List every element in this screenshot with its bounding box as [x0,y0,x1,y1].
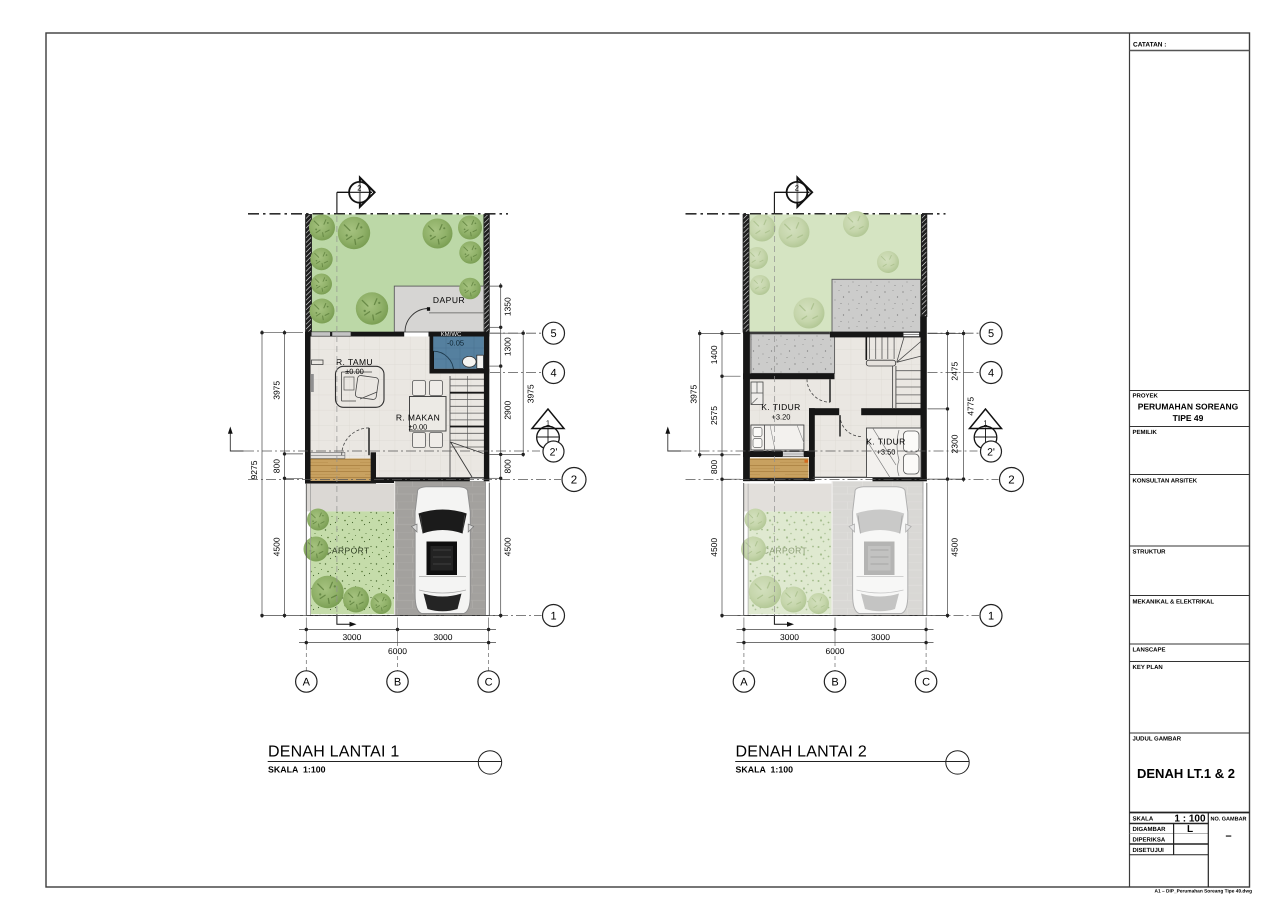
svg-text:4775: 4775 [966,397,976,416]
svg-text:2: 2 [357,183,361,192]
svg-text:DISETUJUI: DISETUJUI [1133,847,1165,854]
svg-text:4500: 4500 [272,537,282,556]
svg-text:2: 2 [571,475,577,487]
svg-text:9275: 9275 [249,460,259,479]
svg-text:4: 4 [988,367,994,379]
svg-text:JUDUL GAMBAR: JUDUL GAMBAR [1133,736,1182,743]
svg-text:2300: 2300 [950,434,960,453]
svg-text:A1 – DIP_Perumahan Soreang Tip: A1 – DIP_Perumahan Soreang Tipe 49.dwg [1155,889,1253,895]
svg-text:TIPE 49: TIPE 49 [1173,413,1204,423]
svg-text:4500: 4500 [709,538,719,557]
svg-text:SKALA: SKALA [268,765,299,775]
svg-text:DIPERIKSA: DIPERIKSA [1133,837,1166,844]
svg-text:DENAH LANTAI 1: DENAH LANTAI 1 [268,744,399,761]
svg-text:1 : 100: 1 : 100 [1174,814,1206,825]
svg-text:B: B [831,676,838,688]
svg-text:C: C [922,676,930,688]
svg-text:1400: 1400 [709,345,719,364]
svg-text:2: 2 [795,183,799,192]
svg-text:SKALA: SKALA [1133,816,1154,823]
svg-text:4500: 4500 [503,537,513,556]
svg-text:2': 2' [550,446,558,458]
svg-text:CARPORT: CARPORT [763,546,807,556]
svg-text:1350: 1350 [503,297,513,316]
svg-text:B: B [394,676,401,688]
svg-text:K. TIDUR: K. TIDUR [761,402,800,412]
svg-text:DENAH LT.1 & 2: DENAH LT.1 & 2 [1137,766,1235,781]
svg-text:800: 800 [503,459,513,473]
svg-text:3975: 3975 [272,381,282,400]
svg-text:3000: 3000 [434,632,453,642]
svg-text:800: 800 [709,460,719,474]
svg-text:2475: 2475 [950,361,960,380]
svg-text:6000: 6000 [826,646,845,656]
svg-text:MEKANIKAL & ELEKTRIKAL: MEKANIKAL & ELEKTRIKAL [1133,599,1215,606]
svg-text:1: 1 [988,610,994,622]
svg-text:DIGAMBAR: DIGAMBAR [1133,826,1167,833]
svg-text:KEY PLAN: KEY PLAN [1133,664,1163,671]
svg-text:C: C [485,676,493,688]
svg-text:2': 2' [987,446,995,458]
svg-text:800: 800 [272,459,282,473]
svg-text:CARPORT: CARPORT [325,546,369,556]
svg-text:2: 2 [1008,475,1014,487]
svg-text:5: 5 [550,328,556,340]
svg-text:±0.00: ±0.00 [409,423,428,432]
svg-text:+3.50: +3.50 [877,448,896,457]
svg-text:PERUMAHAN SOREANG: PERUMAHAN SOREANG [1138,402,1239,412]
svg-text:4: 4 [550,367,556,379]
svg-text:1:100: 1:100 [771,765,794,775]
svg-text:A: A [740,676,748,688]
svg-text:–: – [1225,830,1231,842]
svg-text:1: 1 [983,419,987,428]
svg-text:1300: 1300 [503,337,513,356]
svg-text:-0.05: -0.05 [447,339,464,348]
svg-text:DAPUR: DAPUR [433,295,465,305]
svg-text:±0.00: ±0.00 [345,367,364,376]
svg-text:CATATAN :: CATATAN : [1133,42,1166,49]
svg-text:PROYEK: PROYEK [1133,393,1159,400]
svg-text:3000: 3000 [342,632,361,642]
svg-text:PEMILIK: PEMILIK [1133,429,1158,436]
svg-text:4500: 4500 [950,538,960,557]
svg-text:3000: 3000 [871,632,890,642]
svg-text:R. MAKAN: R. MAKAN [396,413,440,423]
svg-text:5: 5 [988,328,994,340]
svg-text:NO. GAMBAR: NO. GAMBAR [1210,817,1246,823]
svg-text:SKALA: SKALA [736,765,767,775]
svg-text:R. TAMU: R. TAMU [336,357,373,367]
svg-text:LANSCAPE: LANSCAPE [1133,647,1166,654]
svg-text:3000: 3000 [780,632,799,642]
svg-text:STRUKTUR: STRUKTUR [1133,549,1167,556]
svg-text:KONSULTAN ARSITEK: KONSULTAN ARSITEK [1133,478,1198,485]
svg-text:L: L [1187,824,1193,835]
svg-text:A: A [303,676,311,688]
svg-text:2900: 2900 [503,400,513,419]
svg-text:KM/WC: KM/WC [441,331,462,338]
svg-text:1: 1 [550,610,556,622]
svg-text:1:100: 1:100 [303,765,326,775]
svg-text:DENAH LANTAI 2: DENAH LANTAI 2 [736,744,867,761]
svg-text:2575: 2575 [709,406,719,425]
svg-text:3975: 3975 [526,384,536,403]
svg-text:K. TIDUR: K. TIDUR [866,437,905,447]
svg-text:3975: 3975 [689,384,699,403]
svg-text:1: 1 [546,419,550,428]
svg-text:6000: 6000 [388,646,407,656]
